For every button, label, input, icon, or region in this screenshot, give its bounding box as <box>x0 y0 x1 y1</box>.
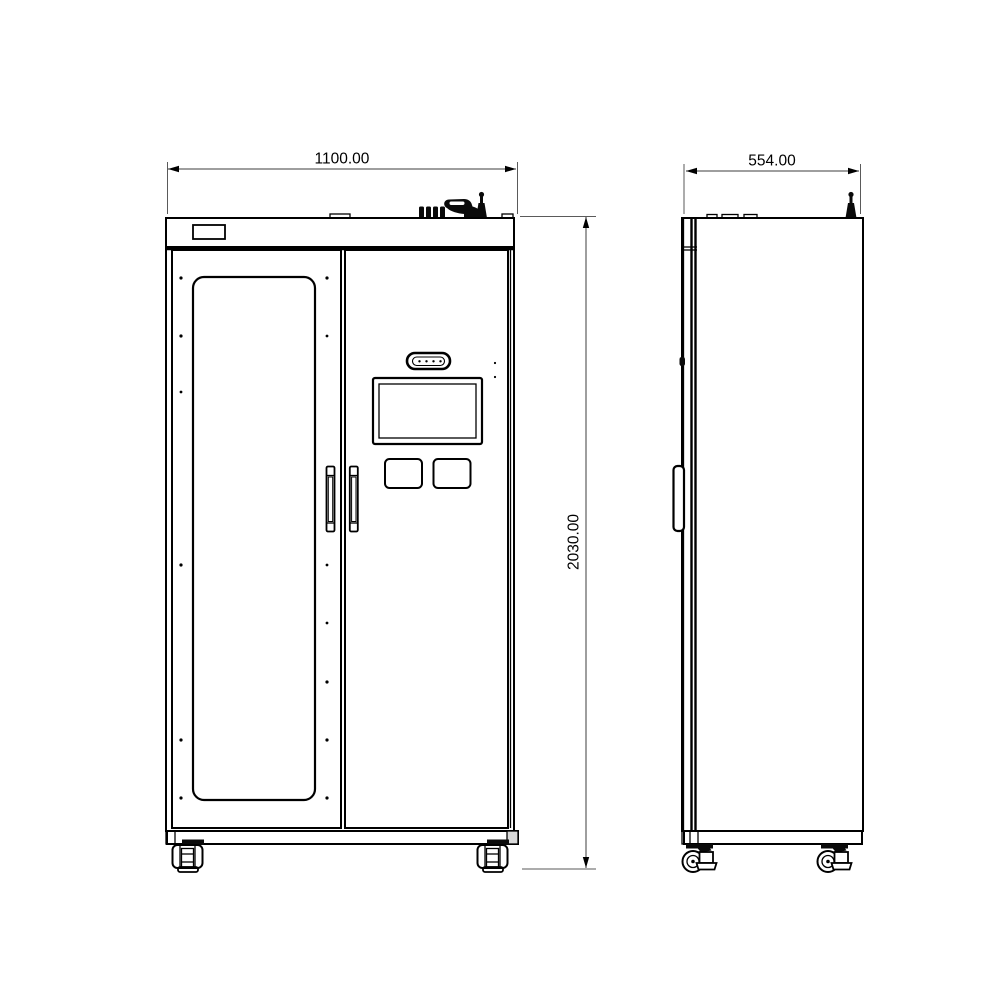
top-panel <box>166 218 514 247</box>
cabinet-body-side <box>682 218 863 831</box>
door-handle-left <box>327 467 335 532</box>
side-antenna-icon <box>846 192 857 218</box>
antenna-icon <box>476 192 487 218</box>
display-screen <box>373 378 482 444</box>
cabinet-drawing: 1100.00 554.00 2030.00 <box>0 0 1000 1000</box>
base-plinth-front <box>167 831 518 844</box>
front-view <box>166 192 518 872</box>
dim-depth: 554.00 <box>684 153 861 215</box>
air-gun-fitting-icon <box>444 199 481 218</box>
indicator-hole-top <box>494 362 496 364</box>
dim-height: 2030.00 <box>520 217 596 870</box>
side-view <box>674 192 864 872</box>
power-connector-icon <box>407 353 450 369</box>
dim-depth-label: 554.00 <box>748 153 796 170</box>
door-handle-right <box>350 467 358 532</box>
caster-side-right <box>818 844 852 872</box>
base-plinth-side <box>684 831 862 844</box>
side-top-fittings <box>707 192 857 219</box>
top-fittings <box>330 192 513 219</box>
right-door <box>345 250 508 828</box>
button-right <box>434 459 471 488</box>
dim-height-label: 2030.00 <box>566 514 583 570</box>
caster-front-left <box>173 840 205 873</box>
indicator-hole-bottom <box>494 376 496 378</box>
technical-drawing-canvas: 1100.00 554.00 2030.00 <box>0 0 1000 1000</box>
dim-width-label: 1100.00 <box>315 151 370 168</box>
button-left <box>385 459 422 488</box>
side-door-handle <box>674 466 685 531</box>
terminal-block-icon <box>419 207 445 219</box>
door-window <box>193 277 315 800</box>
caster-front-right <box>478 840 510 873</box>
caster-side-left <box>683 844 717 872</box>
door-lock-icon <box>680 357 686 366</box>
